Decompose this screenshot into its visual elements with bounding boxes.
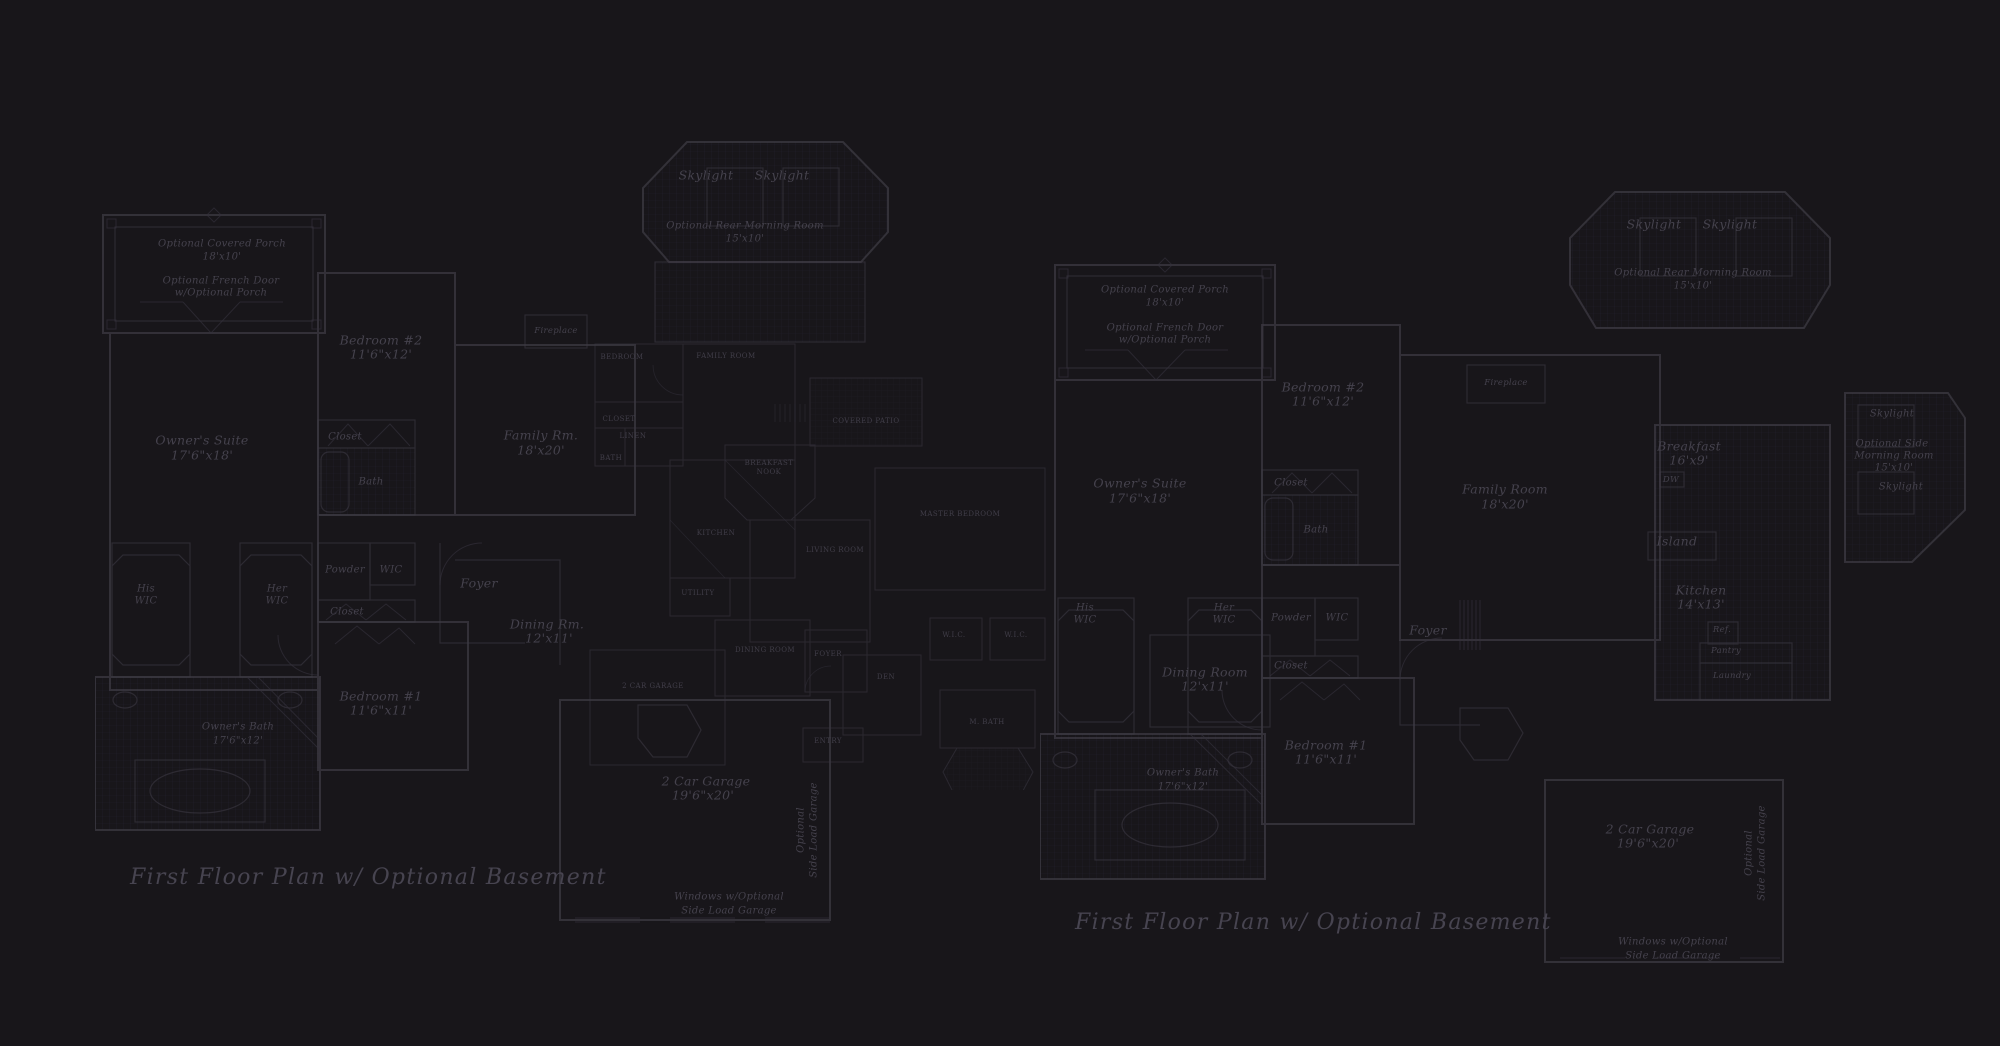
label-skylight-right: Skylight <box>755 168 810 183</box>
label-foyer: Foyer <box>460 576 497 591</box>
label-covered-patio: COVERED PATIO <box>832 417 899 425</box>
label-morning-room-dims: 15'x10' <box>1674 281 1713 292</box>
label-bath: Bath <box>359 477 384 488</box>
label-bedroom1-dims: 11'6"x11' <box>1295 752 1357 767</box>
label-garage: 2 CAR GARAGE <box>622 682 684 690</box>
label-family-room: Family Room <box>1462 482 1548 497</box>
label-covered-porch: Optional Covered Porch <box>158 239 286 250</box>
label-skylight-top: Skylight <box>1870 409 1914 420</box>
label-wic-2: W.I.C. <box>1004 631 1027 639</box>
label-entry: ENTRY <box>814 737 842 745</box>
label-garage: 2 Car Garage <box>1606 822 1695 837</box>
label-laundry: Laundry <box>1713 671 1751 681</box>
label-bedroom1: Bedroom #1 <box>340 689 423 704</box>
label-her: Her <box>267 584 287 595</box>
label-side-morning-1: Optional Side <box>1856 439 1929 450</box>
label-dining-room-dims: 12'x11' <box>1181 679 1229 694</box>
label-her-wic: WIC <box>266 596 289 607</box>
label-dining-room: DINING ROOM <box>735 646 795 654</box>
label-her: Her <box>1214 603 1234 614</box>
label-morning-room: Optional Rear Morning Room <box>1614 268 1772 279</box>
label-bedroom1-dims: 11'6"x11' <box>350 703 412 718</box>
label-owners-suite-dims: 17'6"x18' <box>1109 491 1171 506</box>
floor-plan-small: BEDROOM FAMILY ROOM CLOSET LINEN BATH CO… <box>575 300 1075 790</box>
label-his-wic: WIC <box>1074 615 1097 626</box>
label-family-rm-dims: 18'x20' <box>517 443 565 458</box>
label-french-door-2: w/Optional Porch <box>1119 335 1212 346</box>
label-bedroom2-dims: 11'6"x12' <box>1292 394 1354 409</box>
label-linen: LINEN <box>619 432 646 440</box>
label-foyer: FOYER <box>814 650 842 658</box>
label-bedroom: BEDROOM <box>601 353 644 361</box>
label-m-bath: M. BATH <box>969 718 1004 726</box>
label-morning-room-dims: 15'x10' <box>726 234 765 245</box>
label-ref: Ref. <box>1713 625 1731 635</box>
plan-title-right: First Floor Plan w/ Optional Basement <box>1075 910 1552 935</box>
label-wic: WIC <box>380 565 403 576</box>
label-foyer: Foyer <box>1409 623 1446 638</box>
label-dining-room: Dining Room <box>1162 665 1248 680</box>
label-bath: Bath <box>1304 525 1329 536</box>
label-breakfast: Breakfast <box>1657 439 1721 454</box>
label-family-room-dims: 18'x20' <box>1481 497 1529 512</box>
label-utility: UTILITY <box>681 589 714 597</box>
label-bedroom1: Bedroom #1 <box>1285 738 1368 753</box>
label-bedroom2: Bedroom #2 <box>340 333 423 348</box>
label-covered-porch-dims: 18'x10' <box>203 252 242 263</box>
label-skylight-left: Skylight <box>679 168 734 183</box>
label-island: Island <box>1657 534 1698 549</box>
label-covered-porch-dims: 18'x10' <box>1146 298 1185 309</box>
label-owners-suite: Owner's Suite <box>155 433 248 448</box>
label-dw: DW <box>1663 475 1679 485</box>
label-her-wic: WIC <box>1213 615 1236 626</box>
label-breakfast-dims: 16'x9' <box>1669 453 1709 468</box>
label-powder: Powder <box>325 565 365 576</box>
label-kitchen: Kitchen <box>1676 583 1727 598</box>
label-bedroom2-dims: 11'6"x12' <box>350 347 412 362</box>
label-windows-2: Side Load Garage <box>681 906 777 917</box>
label-living-room: LIVING ROOM <box>806 546 864 554</box>
label-fireplace: Fireplace <box>1484 378 1527 388</box>
label-covered-porch: Optional Covered Porch <box>1101 285 1229 296</box>
small-plan-walls-svg <box>575 300 1075 790</box>
label-breakfast: BREAKFAST <box>745 459 794 467</box>
label-his: His <box>137 584 155 595</box>
fine-lines <box>653 365 831 692</box>
plan-title-left: First Floor Plan w/ Optional Basement <box>130 865 607 890</box>
label-owners-bath-dims: 17'6"x12' <box>1158 782 1208 793</box>
label-french-door: Optional French Door <box>163 276 280 287</box>
label-skylight-left: Skylight <box>1627 217 1682 232</box>
floor-plan-right: Optional Covered Porch 18'x10' Optional … <box>1040 180 1970 980</box>
label-bedroom2: Bedroom #2 <box>1282 380 1365 395</box>
label-closet: CLOSET <box>602 415 635 423</box>
label-owners-suite: Owner's Suite <box>1093 476 1186 491</box>
blueprint-canvas: Optional Covered Porch 18'x10' Optional … <box>0 0 2000 1046</box>
label-wic: WIC <box>1326 613 1349 624</box>
label-skylight-right: Skylight <box>1703 217 1758 232</box>
label-windows-1: Windows w/Optional <box>674 892 784 903</box>
label-family-rm: Family Rm. <box>504 428 578 443</box>
label-french-door: Optional French Door <box>1107 323 1224 334</box>
label-skylight-side: Skylight <box>1879 482 1923 493</box>
label-owners-bath: Owner's Bath <box>1147 768 1219 779</box>
label-bath: BATH <box>600 454 622 462</box>
label-dining-dims: 12'x11' <box>525 631 573 646</box>
label-sideload-2: Side Load Garage <box>1757 805 1768 901</box>
label-garage-dims: 19'6"x20' <box>1617 836 1679 851</box>
label-morning-room: Optional Rear Morning Room <box>666 221 824 232</box>
label-sideload-1: Optional <box>1744 830 1755 876</box>
label-windows-2: Side Load Garage <box>1625 951 1721 962</box>
label-side-morning-dims: 15'x10' <box>1875 463 1914 474</box>
label-wic-1: W.I.C. <box>942 631 965 639</box>
label-kitchen-dims: 14'x13' <box>1677 597 1725 612</box>
label-owners-suite-dims: 17'6"x18' <box>171 448 233 463</box>
label-fireplace: Fireplace <box>534 326 577 336</box>
label-owners-bath-dims: 17'6"x12' <box>213 736 263 747</box>
label-windows-1: Windows w/Optional <box>1618 937 1728 948</box>
label-french-door-2: w/Optional Porch <box>175 288 268 299</box>
label-pantry: Pantry <box>1711 646 1741 656</box>
label-his-wic: WIC <box>135 596 158 607</box>
label-closet: Closet <box>1274 478 1308 489</box>
label-closet-2: Closet <box>330 607 364 618</box>
label-kitchen: KITCHEN <box>697 529 736 537</box>
label-master-bedroom: MASTER BEDROOM <box>920 510 1000 518</box>
label-dining: Dining Rm. <box>510 617 584 632</box>
label-sideload-1: Optional <box>796 807 807 853</box>
label-closet: Closet <box>328 432 362 443</box>
label-closet-2: Closet <box>1274 661 1308 672</box>
label-den: DEN <box>877 673 895 681</box>
label-powder: Powder <box>1271 613 1311 624</box>
label-sideload-2: Side Load Garage <box>809 782 820 878</box>
label-his: His <box>1076 603 1094 614</box>
label-side-morning-2: Morning Room <box>1854 451 1933 462</box>
label-owners-bath: Owner's Bath <box>202 722 274 733</box>
label-nook: NOOK <box>757 468 782 476</box>
label-family-room: FAMILY ROOM <box>696 352 755 360</box>
